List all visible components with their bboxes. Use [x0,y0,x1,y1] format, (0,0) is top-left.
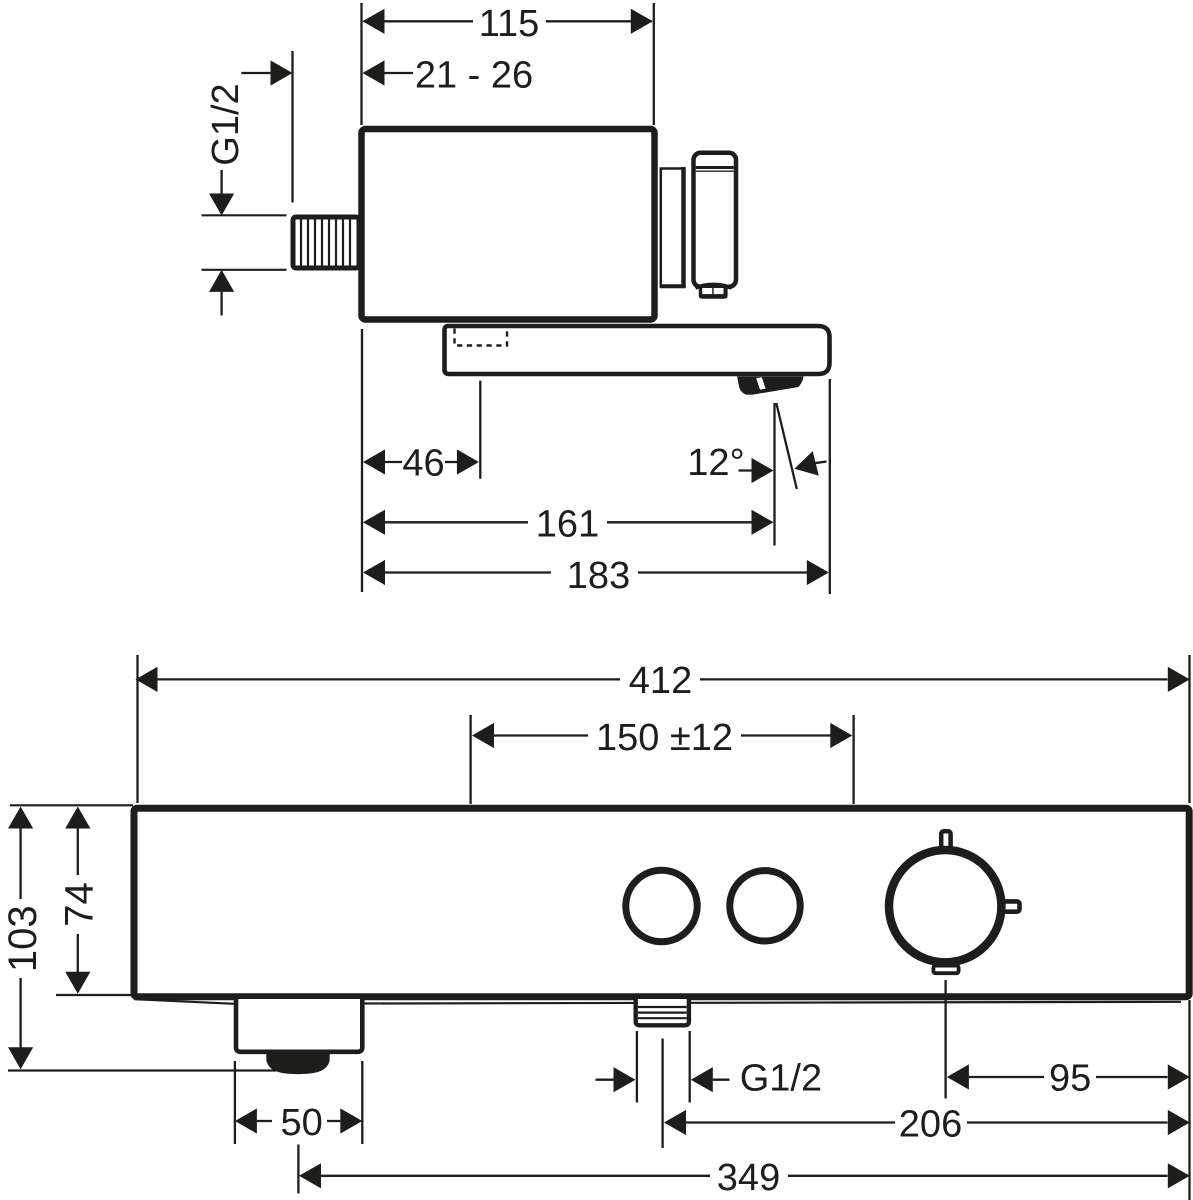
svg-text:103: 103 [1,905,45,972]
svg-text:349: 349 [717,1157,780,1199]
svg-text:183: 183 [567,555,630,597]
svg-text:150 ±12: 150 ±12 [596,717,733,759]
svg-text:46: 46 [402,443,444,485]
svg-text:50: 50 [280,1102,322,1144]
svg-text:206: 206 [899,1104,962,1146]
svg-text:G1/2: G1/2 [205,83,247,165]
svg-text:G1/2: G1/2 [740,1058,822,1100]
svg-text:21 - 26: 21 - 26 [415,55,533,97]
svg-text:412: 412 [629,660,692,702]
svg-text:95: 95 [1049,1058,1091,1100]
svg-text:115: 115 [479,3,540,45]
svg-text:74: 74 [58,882,102,927]
svg-text:161: 161 [536,504,599,546]
svg-text:12°: 12° [687,442,744,484]
